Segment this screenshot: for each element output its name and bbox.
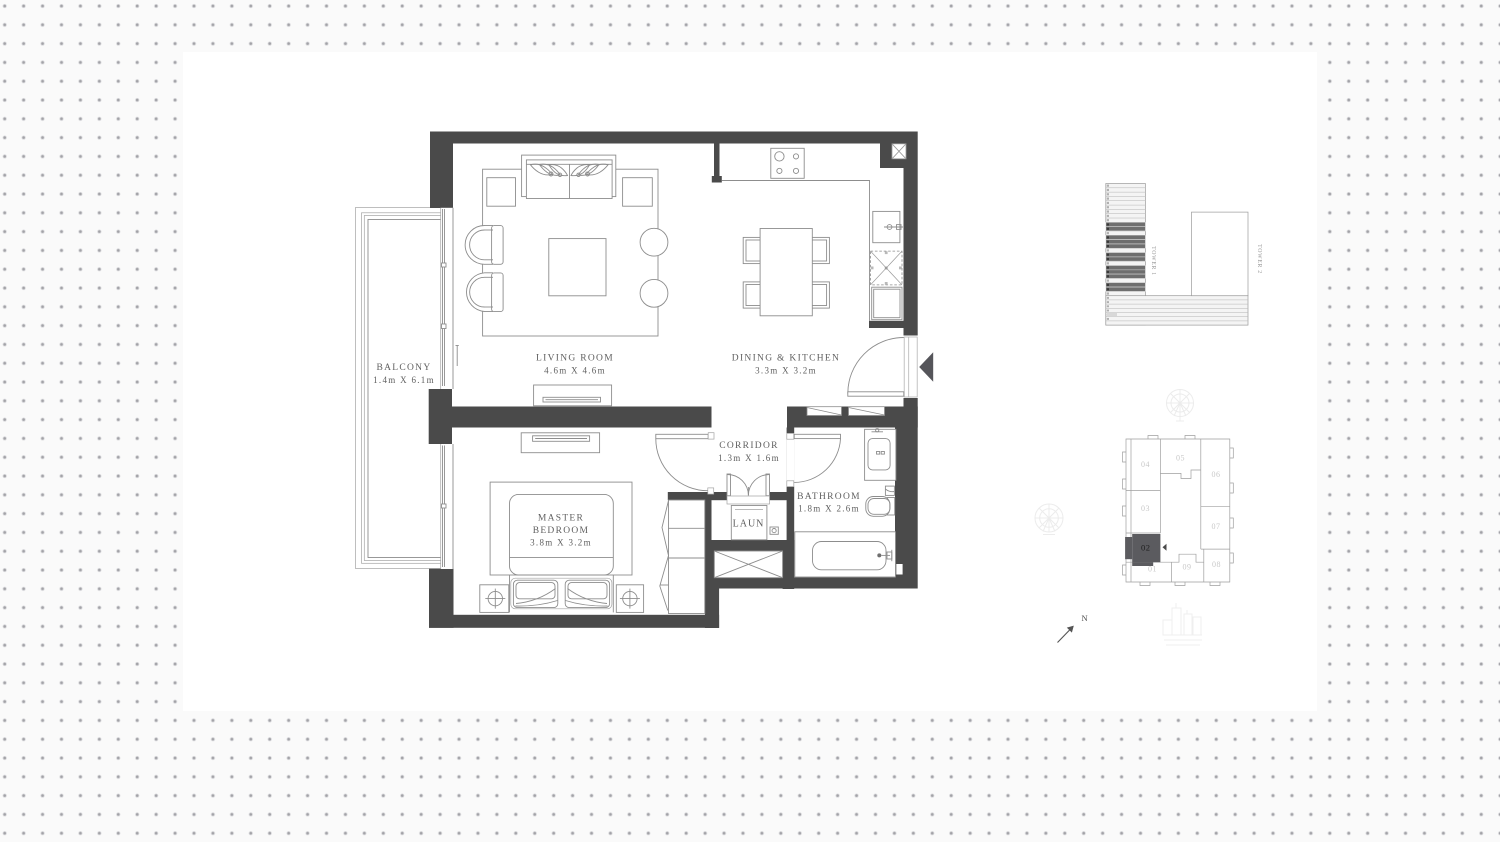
svg-text:TOWER 2: TOWER 2	[1256, 244, 1262, 274]
svg-text:1.3m X 1.6m: 1.3m X 1.6m	[718, 453, 780, 463]
svg-text:TOWER 1: TOWER 1	[1150, 246, 1156, 276]
svg-text:3.8m X 3.2m: 3.8m X 3.2m	[530, 538, 592, 548]
svg-text:LIVING ROOM: LIVING ROOM	[536, 354, 614, 364]
svg-text:04: 04	[1141, 460, 1150, 469]
svg-text:LAUN: LAUN	[733, 519, 765, 530]
svg-text:N: N	[1082, 613, 1088, 623]
svg-text:BATHROOM: BATHROOM	[797, 492, 861, 502]
svg-text:DINING & KITCHEN: DINING & KITCHEN	[732, 354, 840, 364]
svg-text:08: 08	[1212, 560, 1221, 569]
svg-text:09: 09	[1183, 563, 1192, 572]
svg-text:BEDROOM: BEDROOM	[533, 526, 590, 536]
svg-text:MASTER: MASTER	[538, 514, 584, 524]
svg-text:03: 03	[1141, 504, 1150, 513]
svg-text:4.6m X 4.6m: 4.6m X 4.6m	[544, 366, 606, 376]
svg-text:05: 05	[1176, 454, 1185, 463]
svg-text:1.4m X 6.1m: 1.4m X 6.1m	[373, 375, 435, 385]
svg-text:BALCONY: BALCONY	[376, 363, 431, 373]
svg-text:1.8m X 2.6m: 1.8m X 2.6m	[798, 504, 860, 514]
svg-text:02: 02	[1141, 543, 1151, 553]
svg-text:3.3m X 3.2m: 3.3m X 3.2m	[755, 366, 817, 376]
svg-text:06: 06	[1212, 470, 1221, 479]
svg-text:CORRIDOR: CORRIDOR	[719, 441, 779, 451]
svg-text:07: 07	[1212, 522, 1221, 531]
